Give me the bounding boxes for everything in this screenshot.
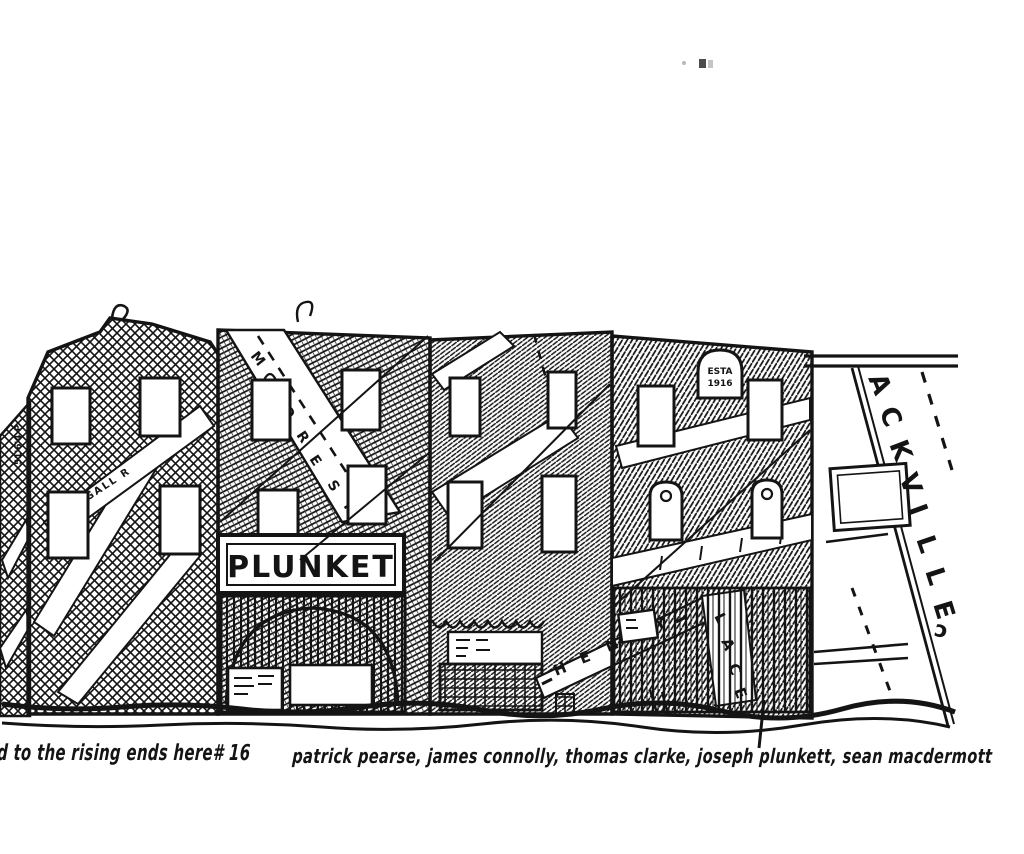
shop-window-grid [440, 664, 542, 710]
plunket-sign-text: PLUNKET [227, 550, 395, 585]
street-window [830, 463, 910, 530]
crate [228, 668, 282, 710]
building-4-shopfront [614, 588, 810, 712]
roof-sprout [297, 302, 312, 322]
paper-specks [682, 59, 713, 68]
plaque-1916: ESTA 1916 [698, 350, 742, 398]
plaque-line2: 1916 [707, 379, 732, 389]
caption-part2: patrick pearse, james connolly, thomas c… [291, 744, 994, 768]
window [52, 388, 90, 444]
window [638, 386, 674, 446]
caption-part1: road to the rising ends here# 16 [0, 741, 251, 766]
building-2-shopfront [221, 596, 405, 712]
window [160, 486, 200, 554]
small-sign [618, 610, 658, 643]
sackville-letter: L [918, 564, 952, 589]
window [548, 372, 576, 428]
sackville-letter: K [882, 436, 918, 466]
street-top-lines [804, 356, 958, 366]
window [342, 370, 380, 430]
window [252, 380, 290, 440]
building-4: ESTA 1916 L A C E [612, 336, 812, 718]
street-debris [556, 694, 574, 714]
sackville-street: A C K V I L L E ɔ [804, 356, 960, 726]
crate [290, 665, 372, 705]
building-3-shopfront [432, 620, 544, 710]
sketch-canvas: 51'6'4 P RIGGALL R M O O [0, 0, 1024, 854]
window [542, 476, 576, 552]
left-margin-note: 51'6'4 P [14, 424, 24, 465]
window [450, 378, 480, 436]
caption: road to the rising ends here# 16 patrick… [0, 741, 994, 768]
window [448, 482, 482, 548]
building-1: RIGGALL R [28, 305, 218, 714]
left-rubble-strip: 51'6'4 P [0, 402, 30, 716]
sackville-letter: L [909, 532, 943, 557]
ink-sketch-page: { "colors": { "paper": "#ffffff", "ink":… [0, 0, 1024, 854]
window [48, 492, 88, 558]
sackville-letter: C [873, 402, 908, 431]
window [748, 380, 782, 440]
dashed-road-line [922, 372, 952, 470]
window [140, 378, 180, 436]
plunket-sign: PLUNKET [218, 535, 404, 593]
sackville-letter: A [862, 369, 897, 399]
plaque-line1: ESTA [707, 367, 732, 377]
